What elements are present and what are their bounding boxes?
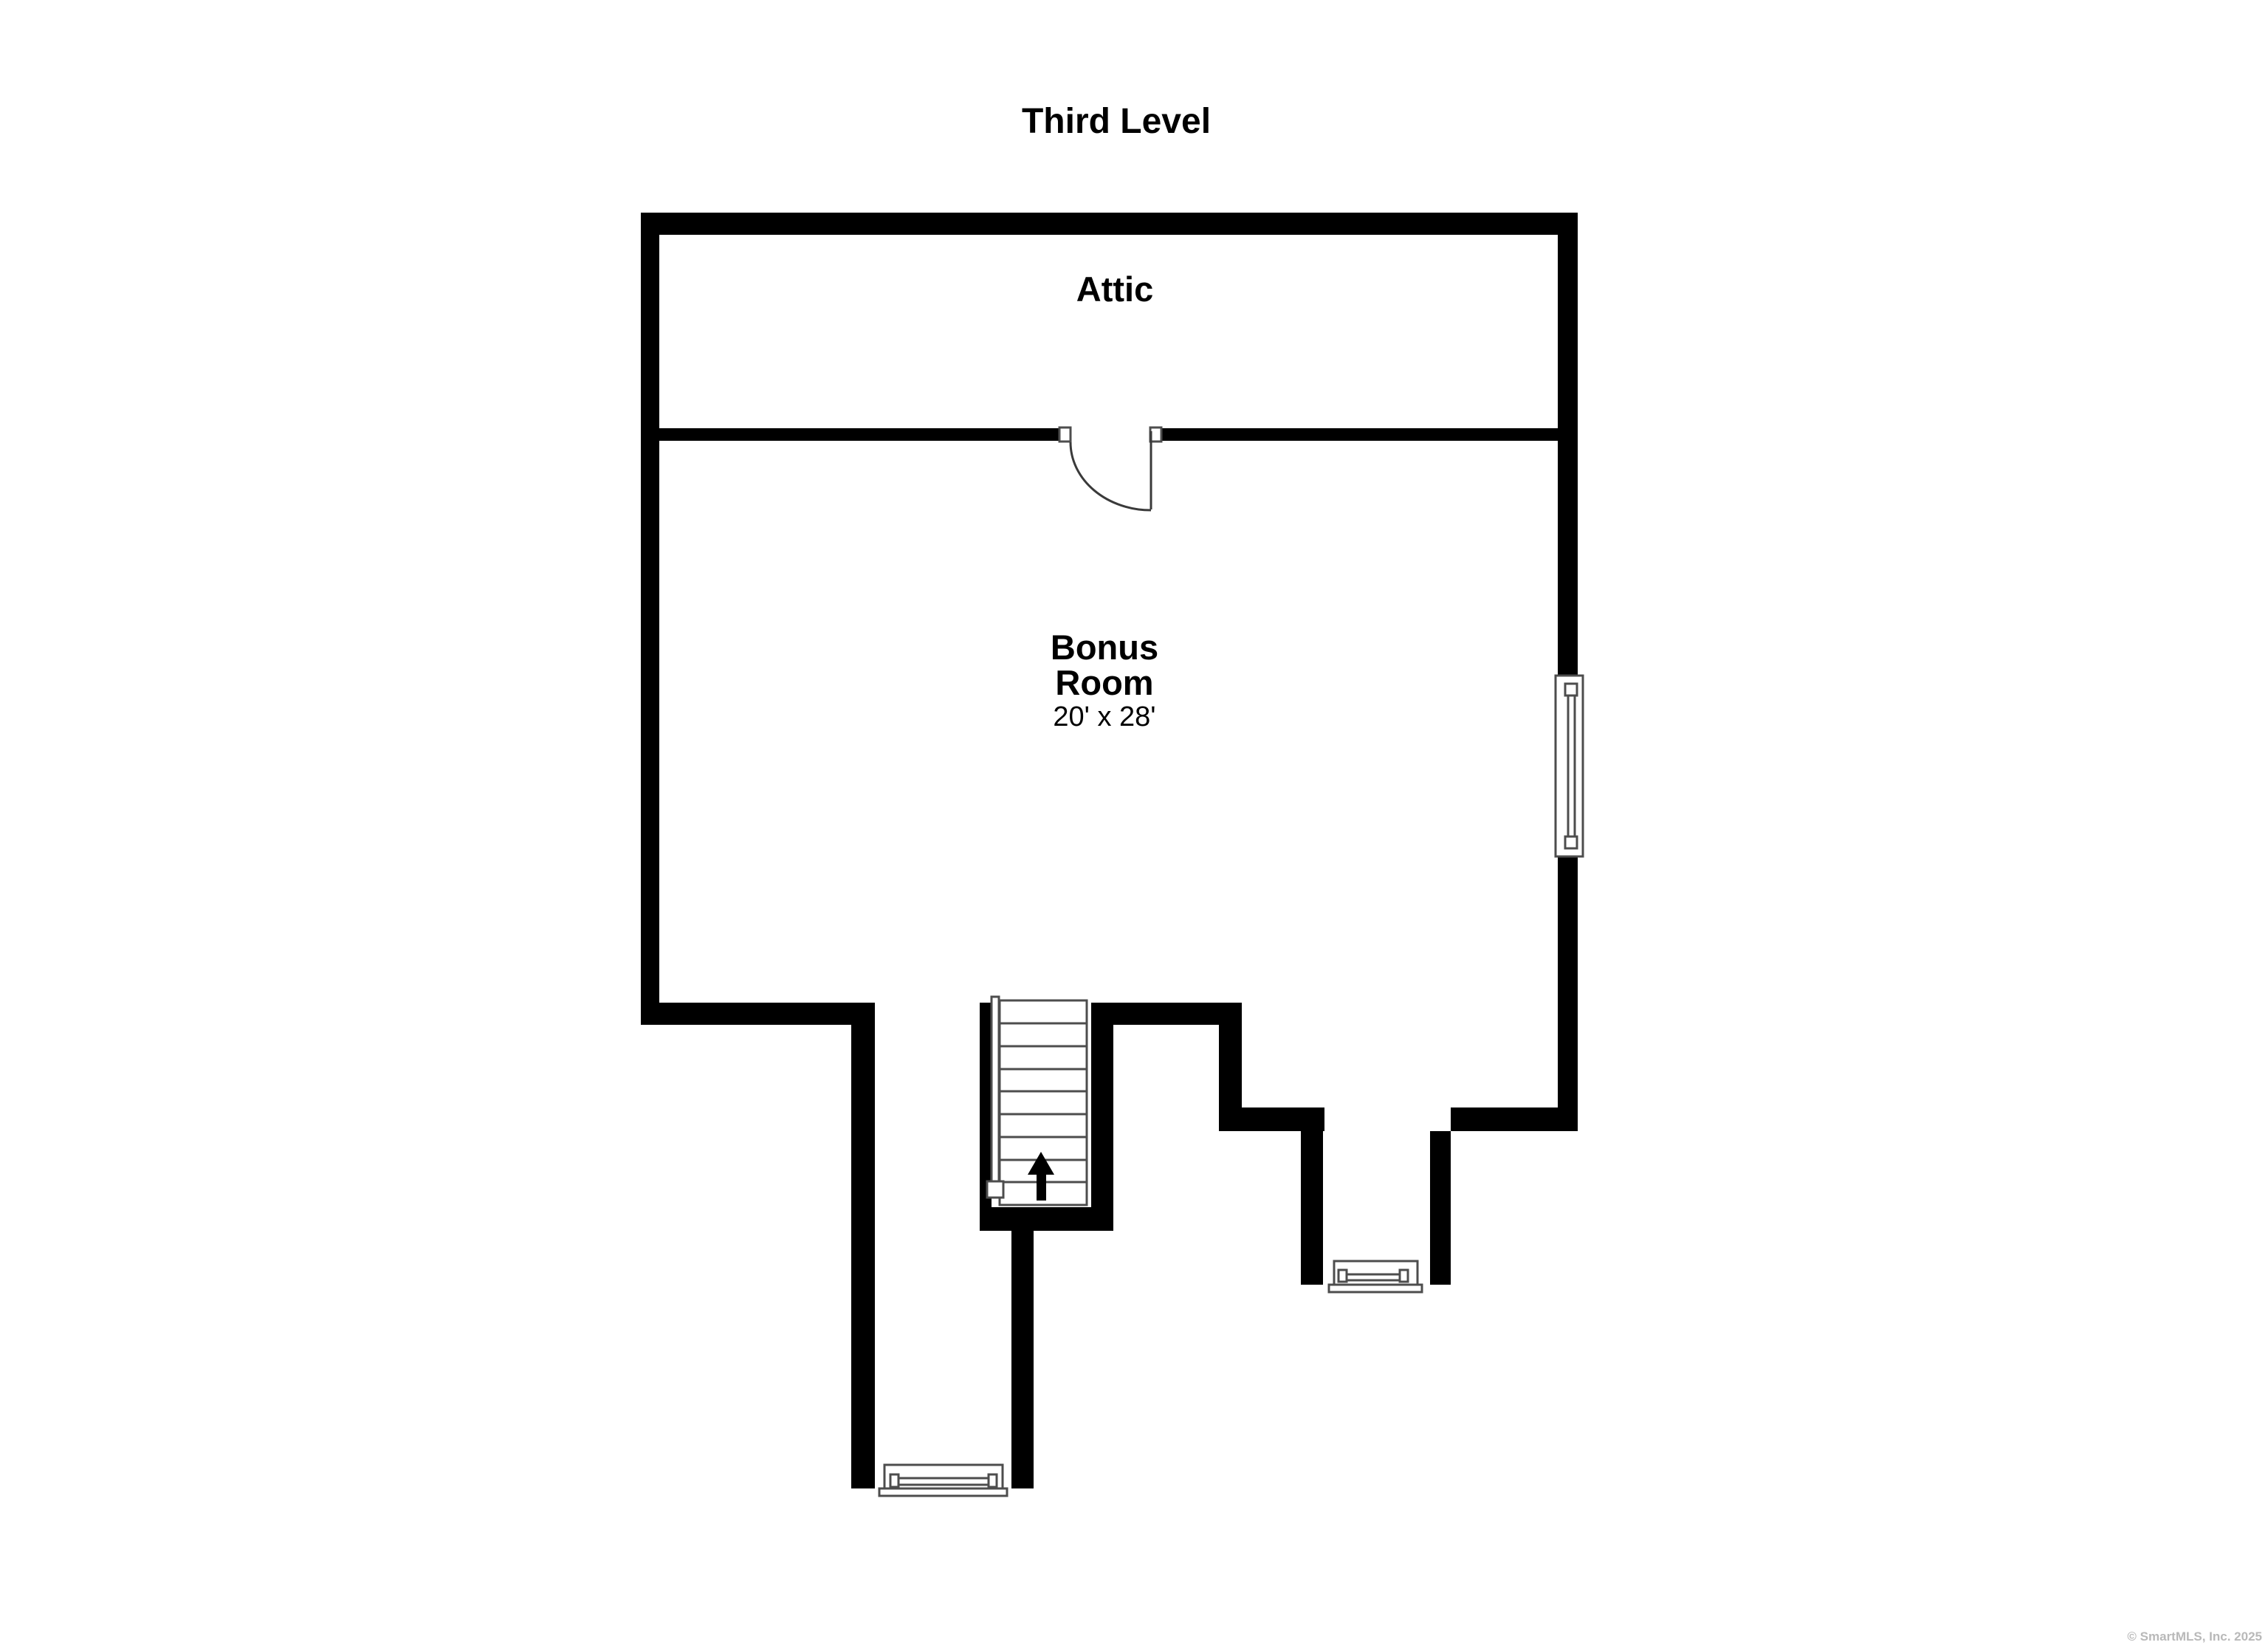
watermark: © SmartMLS, Inc. 2025 — [2127, 1629, 2262, 1644]
floorplan-page: Third Level Attic Bonus Room 20' x 28' ©… — [0, 0, 2268, 1645]
room-label-attic: Attic — [1076, 269, 1153, 309]
wall-right — [1558, 213, 1578, 1131]
room-label-bonus-line1: Bonus — [1051, 628, 1158, 667]
wall-bottom-left-segment — [641, 1003, 875, 1025]
wall-stairwell-bottom — [980, 1207, 1113, 1231]
window-bottom-hallway — [879, 1465, 1007, 1496]
wall-corridor-left — [1301, 1131, 1323, 1285]
window-right-wall — [1556, 676, 1583, 856]
wall-bottom-shelf-right — [1451, 1107, 1578, 1131]
door-attic-bonus — [1059, 427, 1161, 510]
wall-hallway-left — [851, 1025, 875, 1488]
window-bottom-corridor — [1329, 1261, 1422, 1292]
window-cap-right — [1400, 1270, 1408, 1282]
wall-attic-divider-left — [659, 428, 1059, 441]
wall-corridor-right — [1430, 1131, 1451, 1285]
wall-step-down — [1219, 1025, 1242, 1131]
wall-top — [641, 213, 1578, 235]
wall-stairwell-right — [1091, 1003, 1113, 1231]
room-dimensions-bonus: 20' x 28' — [1053, 701, 1155, 732]
window-cap-left — [1339, 1270, 1347, 1282]
walls — [641, 213, 1578, 1488]
window-cap-right — [989, 1474, 997, 1487]
stair-newel-post — [987, 1181, 1003, 1198]
window-cap-bottom — [1565, 837, 1577, 848]
window-cap-top — [1565, 684, 1577, 696]
door-swing-arc — [1071, 442, 1151, 510]
door-jamb-left — [1059, 427, 1071, 442]
wall-left — [641, 213, 659, 1025]
window-sill — [879, 1488, 1007, 1496]
window-cap-left — [890, 1474, 898, 1487]
wall-bottom-mid-segment — [1091, 1003, 1242, 1025]
wall-hallway-right — [1011, 1218, 1034, 1488]
room-label-bonus-line2: Room — [1055, 663, 1153, 702]
wall-bottom-shelf-left — [1242, 1107, 1324, 1131]
plan-title: Third Level — [1022, 102, 1211, 141]
wall-attic-divider-right — [1161, 428, 1558, 441]
window-sill — [1329, 1285, 1422, 1292]
stair-stringer — [992, 997, 999, 1184]
staircase — [987, 997, 1087, 1205]
floorplan-drawing: Third Level Attic Bonus Room 20' x 28' ©… — [0, 0, 2268, 1645]
